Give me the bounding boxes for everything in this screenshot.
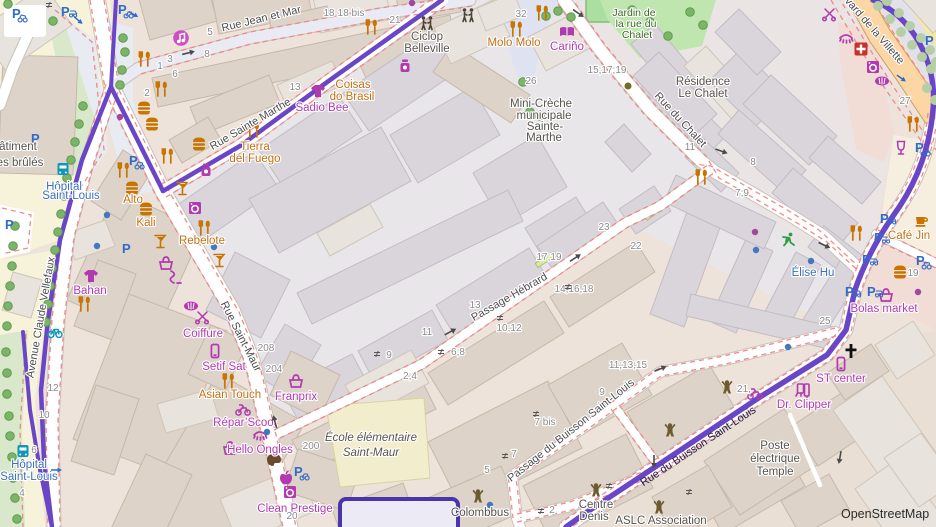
svg-text:7 bis: 7 bis: [534, 417, 555, 428]
svg-text:32: 32: [515, 9, 527, 20]
svg-text:Asian Touch: Asian Touch: [199, 389, 261, 401]
svg-text:15;17;19: 15;17;19: [588, 65, 627, 76]
svg-text:14,16,18: 14,16,18: [555, 284, 594, 295]
svg-text:Élise Hu: Élise Hu: [792, 266, 835, 279]
svg-text:Saint-Louis: Saint-Louis: [42, 190, 100, 202]
svg-text:9: 9: [386, 350, 392, 361]
svg-text:Marthe: Marthe: [526, 132, 562, 144]
svg-text:23: 23: [598, 222, 610, 233]
svg-text:200: 200: [303, 441, 320, 452]
svg-text:âtiment: âtiment: [0, 141, 38, 153]
svg-text:13: 13: [469, 300, 481, 311]
svg-text:P: P: [122, 241, 131, 256]
svg-text:Hôpital: Hôpital: [11, 459, 47, 471]
svg-text:Rebelote: Rebelote: [179, 235, 225, 247]
svg-text:208: 208: [258, 343, 275, 354]
svg-text:Dr. Clipper: Dr. Clipper: [777, 399, 831, 411]
svg-text:Coiffure: Coiffure: [183, 328, 223, 340]
svg-text:20: 20: [286, 511, 298, 522]
svg-text:ASLC Association: ASLC Association: [615, 515, 706, 527]
svg-text:19: 19: [907, 268, 919, 279]
svg-text:électrique: électrique: [750, 453, 800, 465]
svg-text:Bahan: Bahan: [73, 285, 106, 297]
svg-text:École élémentaire: École élémentaire: [325, 431, 417, 444]
svg-text:Belleville: Belleville: [404, 43, 449, 55]
svg-text:6;8: 6;8: [451, 347, 465, 358]
svg-text:21: 21: [389, 15, 401, 26]
svg-text:10: 10: [38, 410, 50, 421]
svg-text:13: 13: [289, 82, 301, 93]
svg-text:P: P: [880, 211, 889, 226]
svg-text:7;9: 7;9: [735, 188, 749, 199]
svg-text:P: P: [845, 284, 854, 299]
svg-text:Le Chalet: Le Chalet: [678, 88, 728, 100]
svg-text:11;13;15: 11;13;15: [609, 360, 648, 371]
svg-text:Saint-Louis: Saint-Louis: [0, 471, 58, 483]
svg-text:P: P: [118, 2, 127, 17]
svg-text:Poste: Poste: [760, 440, 789, 452]
svg-text:11: 11: [422, 327, 433, 338]
svg-text:12: 12: [47, 383, 59, 394]
svg-text:P: P: [5, 217, 14, 232]
svg-text:22: 22: [630, 241, 642, 252]
svg-text:11: 11: [685, 142, 696, 153]
svg-text:es brûlés: es brûlés: [0, 157, 44, 169]
svg-text:8: 8: [750, 157, 756, 168]
svg-text:Cariño: Cariño: [550, 41, 584, 53]
svg-text:6: 6: [172, 69, 178, 80]
svg-text:Sadio Bee: Sadio Bee: [295, 102, 348, 114]
svg-text:Centre: Centre: [579, 499, 614, 511]
svg-text:10;12: 10;12: [496, 323, 521, 334]
svg-text:6: 6: [31, 445, 37, 456]
svg-text:Saint-Maur: Saint-Maur: [343, 447, 400, 459]
svg-text:27: 27: [899, 96, 911, 107]
svg-text:9: 9: [599, 387, 605, 398]
svg-text:Ciclop: Ciclop: [411, 31, 443, 43]
svg-text:7: 7: [511, 449, 517, 460]
svg-text:1: 1: [157, 61, 163, 72]
svg-text:Tierra: Tierra: [240, 141, 270, 153]
svg-text:P: P: [867, 284, 876, 299]
svg-text:5: 5: [484, 465, 490, 476]
svg-text:18: 18: [323, 8, 335, 19]
svg-text:Alto: Alto: [123, 194, 143, 206]
svg-text:Résidence: Résidence: [676, 76, 730, 88]
svg-text:4: 4: [19, 488, 25, 499]
svg-text:P: P: [862, 252, 871, 267]
svg-text:5: 5: [207, 27, 213, 38]
svg-text:Temple: Temple: [756, 466, 793, 478]
svg-text:del Fuego: del Fuego: [229, 153, 280, 165]
svg-text:Franprix: Franprix: [275, 391, 317, 403]
svg-text:8: 8: [204, 49, 210, 60]
svg-text:Coisas: Coisas: [335, 79, 370, 91]
svg-text:3: 3: [167, 54, 173, 65]
svg-text:Hello Ongles: Hello Ongles: [227, 444, 293, 456]
svg-text:2: 2: [549, 505, 555, 516]
svg-text:Bolas market: Bolas market: [850, 303, 918, 315]
svg-text:Répar’Scoot: Répar’Scoot: [213, 417, 278, 429]
svg-text:17;19: 17;19: [536, 252, 561, 263]
svg-text:OpenStreetMap: OpenStreetMap: [841, 507, 929, 521]
svg-text:Chalet: Chalet: [622, 29, 652, 41]
svg-text:P: P: [915, 140, 924, 155]
svg-text:ST center: ST center: [816, 373, 866, 385]
svg-text:Setif Sat: Setif Sat: [202, 361, 246, 373]
svg-text:Mini-Crèche: Mini-Crèche: [510, 98, 572, 110]
svg-text:21,: 21,: [737, 384, 751, 395]
svg-text:do Brasil: do Brasil: [330, 91, 375, 103]
svg-text:P: P: [874, 230, 883, 245]
svg-text:Colombbus: Colombbus: [451, 507, 509, 519]
svg-text:204: 204: [266, 364, 283, 375]
svg-text:Kali: Kali: [136, 217, 155, 229]
svg-text:P: P: [925, 33, 934, 48]
svg-text:Molo Molo: Molo Molo: [487, 37, 540, 49]
svg-text:18 bis: 18 bis: [338, 8, 365, 19]
svg-text:P: P: [61, 4, 70, 19]
svg-text:26: 26: [525, 76, 537, 87]
svg-text:25: 25: [819, 316, 831, 327]
svg-text:2;4: 2;4: [403, 371, 417, 382]
svg-text:2: 2: [144, 88, 150, 99]
svg-text:Denis: Denis: [579, 511, 609, 523]
svg-text:P: P: [294, 464, 303, 479]
svg-text:Café Jin: Café Jin: [888, 230, 930, 242]
